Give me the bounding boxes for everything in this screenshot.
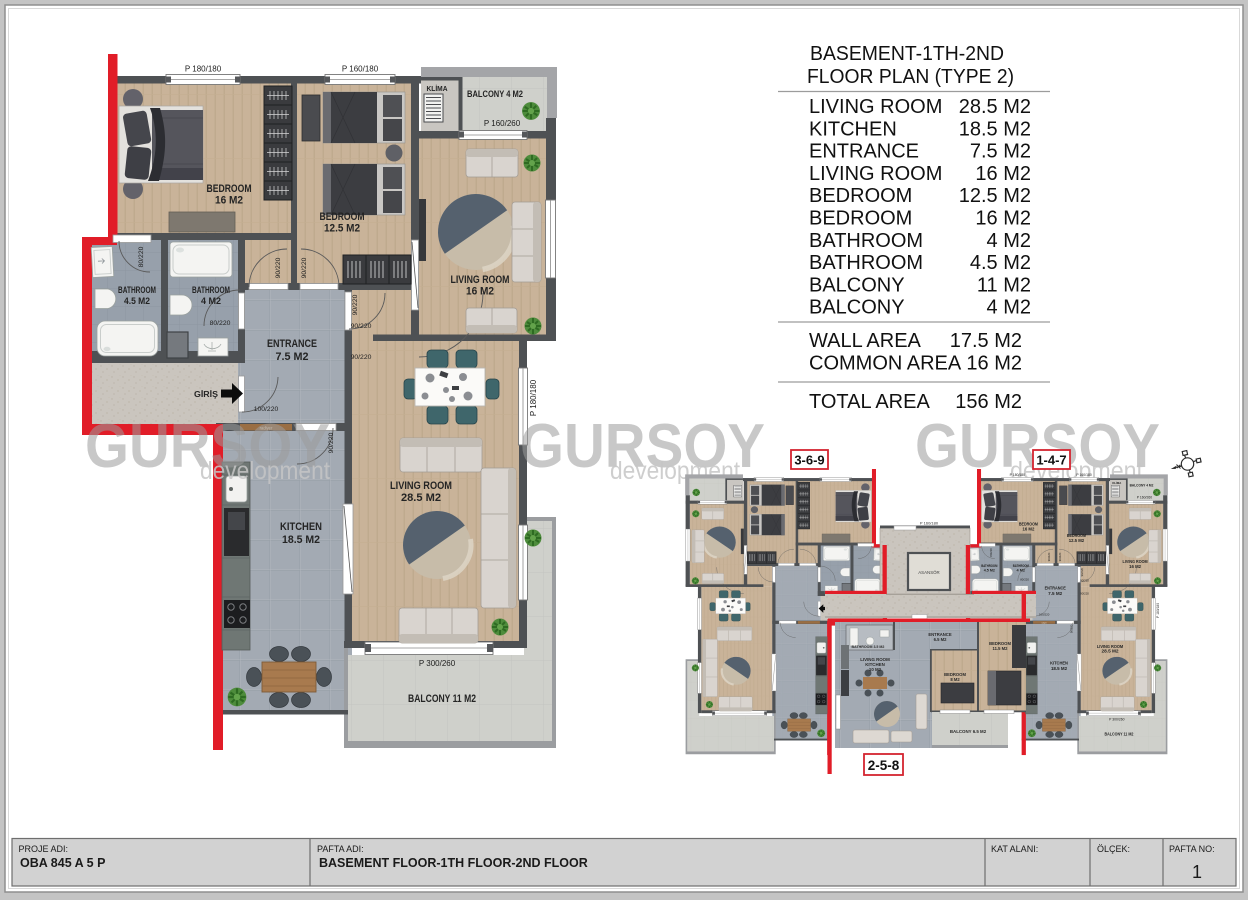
svg-text:18.5 M2: 18.5 M2 xyxy=(282,534,320,546)
svg-text:11.5 M2: 11.5 M2 xyxy=(993,646,1009,651)
svg-text:BASEMENT FLOOR-1TH FLOOR-2ND F: BASEMENT FLOOR-1TH FLOOR-2ND FLOOR xyxy=(319,856,588,870)
svg-text:4 M2: 4 M2 xyxy=(987,230,1031,252)
svg-text:1-4-7: 1-4-7 xyxy=(1036,453,1066,468)
svg-text:LIVING ROOM: LIVING ROOM xyxy=(390,480,452,492)
svg-text:P 160/180: P 160/180 xyxy=(342,65,379,74)
svg-text:BALCONY: BALCONY xyxy=(809,274,905,296)
svg-text:BALCONY 4 M2: BALCONY 4 M2 xyxy=(467,89,523,100)
svg-text:2-5-8: 2-5-8 xyxy=(868,758,900,773)
svg-text:P 160/260: P 160/260 xyxy=(484,119,521,128)
svg-text:BATHROOM: BATHROOM xyxy=(118,285,156,296)
svg-text:BATHROOM: BATHROOM xyxy=(192,285,230,296)
svg-text:BATHROOM: BATHROOM xyxy=(809,252,923,274)
svg-text:7.5 M2: 7.5 M2 xyxy=(970,141,1031,163)
svg-text:GİRİŞ: GİRİŞ xyxy=(194,390,219,399)
svg-text:BALCONY 6.5 M2: BALCONY 6.5 M2 xyxy=(950,729,987,734)
svg-text:3-6-9: 3-6-9 xyxy=(794,453,824,468)
svg-text:90/220: 90/220 xyxy=(275,257,282,278)
svg-text:7.5 M2: 7.5 M2 xyxy=(276,351,309,363)
svg-text:ENTRANCE: ENTRANCE xyxy=(809,141,919,163)
svg-text:11 M2: 11 M2 xyxy=(977,274,1031,296)
svg-text:4.5 M2: 4.5 M2 xyxy=(970,252,1031,274)
svg-text:P 300/260: P 300/260 xyxy=(419,659,456,668)
svg-text:16 M2: 16 M2 xyxy=(975,163,1031,185)
svg-text:90/220: 90/220 xyxy=(351,323,372,330)
svg-text:12.5 M2: 12.5 M2 xyxy=(324,223,360,235)
svg-text:FLOOR PLAN (TYPE 2): FLOOR PLAN (TYPE 2) xyxy=(807,65,1014,88)
svg-text:development: development xyxy=(200,457,330,485)
svg-text:BEDROOM: BEDROOM xyxy=(809,208,912,230)
svg-text:18.5 M2: 18.5 M2 xyxy=(959,118,1031,140)
svg-text:16 M2: 16 M2 xyxy=(466,286,494,298)
svg-text:COMMON AREA: COMMON AREA xyxy=(809,353,962,375)
svg-text:P 180/180: P 180/180 xyxy=(185,65,222,74)
svg-text:LIVING ROOM: LIVING ROOM xyxy=(809,163,942,185)
svg-text:BATHROOM 3.5 M2: BATHROOM 3.5 M2 xyxy=(852,645,885,649)
svg-text:16 M2: 16 M2 xyxy=(975,208,1031,230)
svg-text:1: 1 xyxy=(1192,862,1202,882)
svg-text:90/220: 90/220 xyxy=(351,354,372,361)
svg-text:8 M2: 8 M2 xyxy=(950,677,960,682)
svg-text:WALL AREA: WALL AREA xyxy=(809,330,922,352)
svg-text:17.5 M2: 17.5 M2 xyxy=(950,330,1022,352)
svg-text:BASEMENT-1TH-2ND: BASEMENT-1TH-2ND xyxy=(810,42,1004,65)
svg-text:KLİMA: KLİMA xyxy=(427,84,449,93)
svg-text:28.5 M2: 28.5 M2 xyxy=(959,96,1031,118)
svg-text:4 M2: 4 M2 xyxy=(987,297,1031,319)
svg-text:TOTAL AREA: TOTAL AREA xyxy=(809,391,930,413)
svg-text:ASANSÖR: ASANSÖR xyxy=(918,570,939,575)
svg-text:BATHROOM: BATHROOM xyxy=(809,230,923,252)
svg-text:LIVING ROOM: LIVING ROOM xyxy=(451,274,510,286)
svg-text:BEDROOM: BEDROOM xyxy=(809,185,912,207)
svg-text:OBA 845 A 5 P: OBA 845 A 5 P xyxy=(20,856,105,870)
svg-text:KAT ALANI:: KAT ALANI: xyxy=(991,844,1038,854)
svg-text:ENTRANCE: ENTRANCE xyxy=(267,338,317,350)
svg-text:BALCONY: BALCONY xyxy=(809,297,905,319)
svg-text:LIVING ROOM: LIVING ROOM xyxy=(809,96,942,118)
svg-text:ÖLÇEK:: ÖLÇEK: xyxy=(1097,844,1130,854)
svg-text:BEDROOM: BEDROOM xyxy=(207,183,252,195)
svg-text:4 M2: 4 M2 xyxy=(201,296,221,307)
svg-text:16 M2: 16 M2 xyxy=(966,353,1022,375)
svg-text:90/220: 90/220 xyxy=(352,294,359,315)
svg-text:80/220: 80/220 xyxy=(210,320,231,327)
svg-text:156 M2: 156 M2 xyxy=(955,391,1022,413)
svg-text:KITCHEN: KITCHEN xyxy=(280,521,322,533)
svg-text:80/220: 80/220 xyxy=(138,246,145,267)
svg-text:10 M2: 10 M2 xyxy=(869,667,882,672)
svg-text:P 180/180: P 180/180 xyxy=(529,379,538,416)
svg-text:PAFTA ADI:: PAFTA ADI: xyxy=(317,844,364,854)
svg-text:90/220: 90/220 xyxy=(301,257,308,278)
svg-text:6.5 M2: 6.5 M2 xyxy=(934,637,947,642)
svg-text:12.5 M2: 12.5 M2 xyxy=(959,185,1031,207)
svg-text:P 160/180: P 160/180 xyxy=(920,521,939,526)
svg-text:4.5 M2: 4.5 M2 xyxy=(124,296,150,307)
svg-text:BEDROOM: BEDROOM xyxy=(320,211,365,223)
svg-text:KITCHEN: KITCHEN xyxy=(809,118,897,140)
svg-text:28.5 M2: 28.5 M2 xyxy=(401,492,441,504)
svg-text:PAFTA NO:: PAFTA NO: xyxy=(1169,844,1215,854)
svg-text:PROJE ADI:: PROJE ADI: xyxy=(19,844,69,854)
svg-text:16 M2: 16 M2 xyxy=(215,195,243,207)
svg-text:BALCONY 11 M2: BALCONY 11 M2 xyxy=(408,693,476,705)
